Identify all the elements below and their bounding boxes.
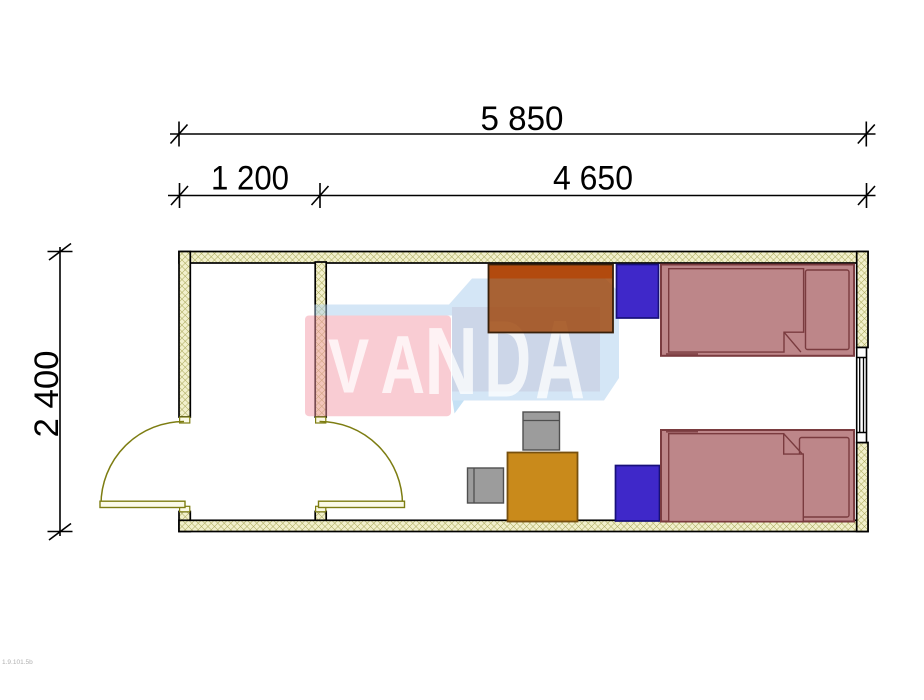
svg-text:1.9.101.5b: 1.9.101.5b bbox=[2, 659, 33, 666]
svg-text:V: V bbox=[328, 323, 370, 409]
svg-text:N: N bbox=[424, 308, 478, 415]
svg-text:4 650: 4 650 bbox=[553, 160, 633, 198]
svg-text:1 200: 1 200 bbox=[211, 160, 289, 198]
svg-text:2 400: 2 400 bbox=[28, 351, 66, 438]
svg-text:A: A bbox=[381, 319, 426, 411]
svg-text:5 850: 5 850 bbox=[481, 100, 564, 138]
